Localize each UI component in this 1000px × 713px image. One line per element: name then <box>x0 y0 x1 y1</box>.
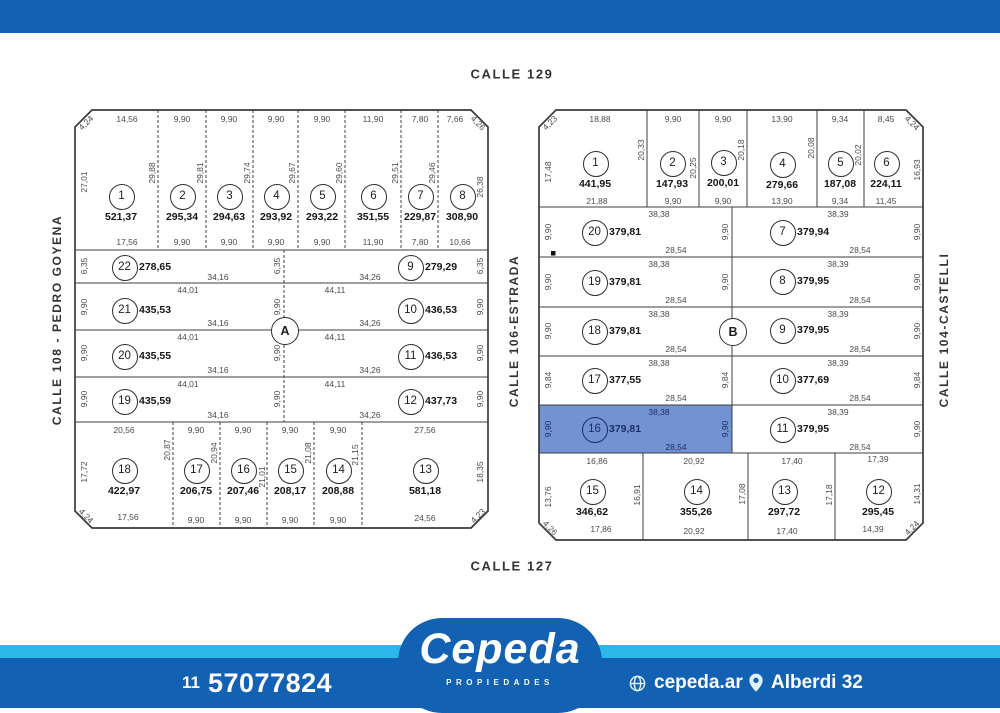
dimension-label: 9,90 <box>476 345 485 362</box>
dimension-label: 4,24 <box>77 507 95 525</box>
dimension-label: 20,87 <box>163 439 172 460</box>
dimension-label: 11,45 <box>876 197 897 206</box>
lot-number-badge: 5 <box>828 151 854 177</box>
lot-area: 435,55 <box>139 351 171 362</box>
dimension-label: 20,92 <box>683 527 704 536</box>
dimension-label: 29,46 <box>428 162 437 183</box>
dimension-label: 27,01 <box>80 171 89 192</box>
lot-number-badge: 6 <box>874 151 900 177</box>
logo-tagline: PROPIEDADES <box>446 678 554 687</box>
dimension-label: 26,38 <box>476 176 485 197</box>
dimension-label: 9,90 <box>721 274 730 291</box>
dimension-label: 9,90 <box>174 238 191 247</box>
lot-area: 297,72 <box>768 507 800 518</box>
lot-area: 436,53 <box>425 351 457 362</box>
dimension-label: 9,90 <box>80 391 89 408</box>
lot-number-badge: 15 <box>278 458 304 484</box>
street-label-pedro-goyena: CALLE 108 - PEDRO GOYENA <box>50 215 64 425</box>
lot-area: 377,69 <box>797 375 829 386</box>
globe-icon <box>628 674 647 693</box>
street-label-calle-127: CALLE 127 <box>470 559 553 574</box>
dimension-label: 29,67 <box>288 162 297 183</box>
dimension-label: 28,54 <box>849 296 870 305</box>
dimension-label: 9,90 <box>721 224 730 241</box>
lot-area: 278,65 <box>139 262 171 273</box>
phone-digits: 57077824 <box>208 668 332 699</box>
dimension-label: 9,90 <box>715 115 732 124</box>
dimension-label: 9,90 <box>665 115 682 124</box>
dimension-label: 44,01 <box>177 380 198 389</box>
dimension-label: 9,90 <box>273 391 282 408</box>
lot-number-badge: 12 <box>866 479 892 505</box>
dimension-label: 38,39 <box>827 408 848 417</box>
address-text: Alberdi 32 <box>771 672 863 694</box>
dimension-label: 9,90 <box>330 426 347 435</box>
dimension-label: 28,54 <box>849 246 870 255</box>
lot-area: 308,90 <box>446 212 478 223</box>
lot-area: 435,59 <box>139 396 171 407</box>
lot-area: 207,46 <box>227 486 259 497</box>
dimension-label: 34,16 <box>207 273 228 282</box>
dimension-label: 7,80 <box>412 238 429 247</box>
dimension-label: 7,66 <box>447 115 464 124</box>
dimension-label: 4,26 <box>469 114 487 132</box>
lot-number-badge: 11 <box>770 417 796 443</box>
lot-number-badge: 2 <box>660 151 686 177</box>
lot-area: 200,01 <box>707 178 739 189</box>
dimension-label: 9,90 <box>268 238 285 247</box>
lot-number-badge: 14 <box>684 479 710 505</box>
dimension-label: 20,08 <box>807 137 816 158</box>
dimension-label: 20,18 <box>737 139 746 160</box>
dimension-label: 44,01 <box>177 333 198 342</box>
dimension-label: 9,90 <box>715 197 732 206</box>
dimension-label: 9,90 <box>544 224 553 241</box>
dimension-label: 28,54 <box>849 345 870 354</box>
dimension-label: 17,72 <box>80 461 89 482</box>
dimension-label: 9,34 <box>832 197 849 206</box>
dimension-label: 34,16 <box>207 366 228 375</box>
dimension-label: 17,86 <box>590 525 611 534</box>
lot-number-badge: 19 <box>582 270 608 296</box>
dimension-label: 38,39 <box>827 310 848 319</box>
street-label-calle-129: CALLE 129 <box>470 67 553 82</box>
lot-area: 379,95 <box>797 325 829 336</box>
lot-number-badge: 9 <box>770 318 796 344</box>
dimension-label: 9,90 <box>544 274 553 291</box>
dimension-label: 27,56 <box>414 426 435 435</box>
dimension-label: 20,33 <box>637 139 646 160</box>
logo-bubble: Cepeda PROPIEDADES <box>398 618 602 713</box>
lot-area: 293,22 <box>306 212 338 223</box>
lot-number-badge: 20 <box>112 344 138 370</box>
lot-area: 379,81 <box>609 424 641 435</box>
dimension-label: 13,76 <box>544 486 553 507</box>
lot-number-badge: 8 <box>450 184 476 210</box>
dimension-label: 6,35 <box>80 258 89 275</box>
dimension-label: 9,90 <box>544 421 553 438</box>
lot-number-badge: 7 <box>770 220 796 246</box>
dimension-label: 18,88 <box>589 115 610 124</box>
street-label-estrada: CALLE 106-ESTRADA <box>507 255 521 408</box>
lot-number-badge: 12 <box>398 389 424 415</box>
lot-number-badge: 1 <box>583 151 609 177</box>
lot-area: 295,45 <box>862 507 894 518</box>
dimension-label: 18,35 <box>476 461 485 482</box>
lot-number-badge: 8 <box>770 269 796 295</box>
lot-area: 422,97 <box>108 486 140 497</box>
location-pin-icon <box>748 673 764 693</box>
dimension-label: 17,40 <box>776 527 797 536</box>
dimension-label: 9,90 <box>268 115 285 124</box>
phone-number: 11 57077824 <box>182 666 332 700</box>
dimension-label: 38,39 <box>827 359 848 368</box>
dimension-label: 38,38 <box>648 310 669 319</box>
dimension-label: 9,90 <box>273 299 282 316</box>
dimension-label: 29,51 <box>391 162 400 183</box>
lot-area: 279,66 <box>766 180 798 191</box>
lot-area: 206,75 <box>180 486 212 497</box>
dimension-label: 9,90 <box>174 115 191 124</box>
dimension-label: 9,90 <box>188 426 205 435</box>
lot-area: 581,18 <box>409 486 441 497</box>
lot-area: 208,88 <box>322 486 354 497</box>
lot-area: 521,37 <box>105 212 137 223</box>
dimension-label: 38,38 <box>648 408 669 417</box>
lot-number-badge: 17 <box>582 368 608 394</box>
phone-prefix: 11 <box>182 673 200 693</box>
address: Alberdi 32 <box>748 666 863 700</box>
dimension-label: 34,26 <box>359 366 380 375</box>
dimension-label: 28,54 <box>665 345 686 354</box>
lot-area: 441,95 <box>579 179 611 190</box>
dimension-label: 17,18 <box>825 484 834 505</box>
lot-number-badge: 11 <box>398 344 424 370</box>
lot-area: 229,87 <box>404 212 436 223</box>
dimension-label: 34,16 <box>207 319 228 328</box>
dimension-label: 21,88 <box>586 197 607 206</box>
dimension-label: 17,48 <box>544 161 553 182</box>
dimension-label: 44,11 <box>325 286 346 295</box>
lot-area: 379,81 <box>609 277 641 288</box>
dimension-label: 9,90 <box>913 323 922 340</box>
lot-area: 208,17 <box>274 486 306 497</box>
dimension-label: 38,38 <box>648 359 669 368</box>
dimension-label: 4,23 <box>469 507 487 525</box>
lot-number-badge: 13 <box>772 479 798 505</box>
lot-number-badge: 20 <box>582 220 608 246</box>
dimension-label: 34,26 <box>359 411 380 420</box>
lot-area: 351,55 <box>357 212 389 223</box>
dimension-label: 9,34 <box>832 115 849 124</box>
dimension-label: 16,91 <box>633 484 642 505</box>
website-text: cepeda.ar <box>654 672 743 694</box>
dimension-label: 9,90 <box>476 391 485 408</box>
junction-label-B: B <box>719 318 747 346</box>
dimension-label: 10,66 <box>449 238 470 247</box>
dimension-label: 4,24 <box>903 114 921 132</box>
dimension-label: 38,39 <box>827 260 848 269</box>
lot-area: 379,94 <box>797 227 829 238</box>
dimension-label: 34,26 <box>359 273 380 282</box>
dimension-label: 17,39 <box>867 455 888 464</box>
lot-area: 379,81 <box>609 227 641 238</box>
lot-number-badge: 21 <box>112 298 138 324</box>
lot-number-badge: 3 <box>217 184 243 210</box>
dimension-label: 9,90 <box>282 426 299 435</box>
dimension-label: 29,81 <box>196 162 205 183</box>
lot-number-badge: 1 <box>109 184 135 210</box>
dimension-label: 20,94 <box>210 442 219 463</box>
lot-area: 436,53 <box>425 305 457 316</box>
dimension-label: 9,90 <box>330 516 347 525</box>
lot-number-badge: 6 <box>361 184 387 210</box>
lot-number-badge: 2 <box>170 184 196 210</box>
dimension-label: 9,90 <box>665 197 682 206</box>
lot-area: 355,26 <box>680 507 712 518</box>
dimension-label: 20,25 <box>689 157 698 178</box>
lot-area: 379,81 <box>609 326 641 337</box>
dimension-label: 7,80 <box>412 115 429 124</box>
dimension-label: 29,74 <box>243 162 252 183</box>
dimension-label: 9,90 <box>721 421 730 438</box>
lot-number-badge: 3 <box>711 150 737 176</box>
lot-number-badge: 16 <box>582 417 608 443</box>
lot-number-badge: 4 <box>770 152 796 178</box>
dimension-label: 9,90 <box>544 323 553 340</box>
dimension-label: 21,01 <box>258 466 267 487</box>
dimension-label: 28,54 <box>849 443 870 452</box>
dimension-label: 24,56 <box>414 514 435 523</box>
dimension-label: 9,84 <box>544 372 553 389</box>
dimension-label: 4,24 <box>903 519 921 537</box>
dimension-label: 9,90 <box>188 516 205 525</box>
dimension-label: 13,90 <box>771 197 792 206</box>
dimension-label: 11,90 <box>363 238 384 247</box>
dimension-label: 6,35 <box>273 258 282 275</box>
logo-wordmark: Cepeda <box>419 628 580 671</box>
junction-label-A: A <box>271 317 299 345</box>
lot-number-badge: 13 <box>413 458 439 484</box>
lot-area: 224,11 <box>870 179 902 190</box>
dimension-label: 9,84 <box>721 372 730 389</box>
dimension-label: 4,26 <box>541 519 559 537</box>
lot-area: 379,95 <box>797 276 829 287</box>
lot-area: 346,62 <box>576 507 608 518</box>
dimension-label: 9,90 <box>314 115 331 124</box>
lot-area: 187,08 <box>824 179 856 190</box>
lot-number-badge: 19 <box>112 389 138 415</box>
lot-number-badge: 10 <box>770 368 796 394</box>
dimension-label: 11,90 <box>363 115 384 124</box>
lot-number-badge: 7 <box>408 184 434 210</box>
dimension-label: 9,90 <box>80 345 89 362</box>
lot-number-badge: 18 <box>582 319 608 345</box>
dimension-label: 14,39 <box>862 525 883 534</box>
dimension-label: 20,92 <box>683 457 704 466</box>
lot-number-badge: 17 <box>184 458 210 484</box>
lot-area: 294,63 <box>213 212 245 223</box>
dimension-label: 17,40 <box>781 457 802 466</box>
left-block-lot-20[interactable]: 20435,55 <box>0 0 1000 708</box>
dimension-label: 17,08 <box>738 483 747 504</box>
lot-number-badge: 4 <box>264 184 290 210</box>
dimension-label: 13,90 <box>771 115 792 124</box>
dimension-label: 9,90 <box>80 299 89 316</box>
lot-number-badge: 9 <box>398 255 424 281</box>
dimension-label: 44,11 <box>325 380 346 389</box>
lot-number-badge: 22 <box>112 255 138 281</box>
dimension-label: 9,84 <box>913 372 922 389</box>
dimension-label: 34,26 <box>359 319 380 328</box>
lot-number-badge: 16 <box>231 458 257 484</box>
dimension-label: 9,90 <box>913 421 922 438</box>
lot-number-badge: 18 <box>112 458 138 484</box>
dimension-label: 4,24 <box>77 114 95 132</box>
dimension-label: 6,35 <box>476 258 485 275</box>
dimension-label: 9,90 <box>282 516 299 525</box>
lot-number-badge: 14 <box>326 458 352 484</box>
dimension-label: 9,90 <box>273 345 282 362</box>
dimension-label: 38,39 <box>827 210 848 219</box>
dimension-label: 16,93 <box>913 159 922 180</box>
dimension-label: 17,56 <box>117 513 138 522</box>
dimension-label: 9,90 <box>235 426 252 435</box>
dimension-label: 14,31 <box>913 483 922 504</box>
lot-area: 377,55 <box>609 375 641 386</box>
dimension-label: 21,08 <box>304 442 313 463</box>
dimension-label: 9,90 <box>476 299 485 316</box>
dimension-label: 20,02 <box>854 144 863 165</box>
dimension-label: 4,23 <box>541 114 559 132</box>
dimension-label: 28,54 <box>665 443 686 452</box>
dimension-label: 9,90 <box>235 516 252 525</box>
dimension-label: 20,56 <box>113 426 134 435</box>
lot-number-badge: 15 <box>580 479 606 505</box>
website-link[interactable]: cepeda.ar <box>628 666 743 700</box>
dimension-label: 9,90 <box>913 224 922 241</box>
street-label-castelli: CALLE 104-CASTELLI <box>937 253 951 408</box>
lot-area: 293,92 <box>260 212 292 223</box>
dimension-label: 28,54 <box>665 296 686 305</box>
lot-area: 279,29 <box>425 262 457 273</box>
dimension-label: 9,90 <box>913 274 922 291</box>
dimension-label: 29,60 <box>335 162 344 183</box>
dimension-label: 16,86 <box>586 457 607 466</box>
lot-area: 295,34 <box>166 212 198 223</box>
map-labels: CALLE 129 CALLE 127 CALLE 108 - PEDRO GO… <box>0 0 1000 708</box>
dimension-label: 9,90 <box>221 238 238 247</box>
dimension-label: 28,54 <box>665 394 686 403</box>
dimension-label: 9,90 <box>314 238 331 247</box>
dimension-label: 44,11 <box>325 333 346 342</box>
dimension-label: 8,45 <box>878 115 895 124</box>
dimension-label: 17,56 <box>116 238 137 247</box>
dimension-label: 9,90 <box>221 115 238 124</box>
dimension-label: 38,38 <box>648 210 669 219</box>
lot-area: 147,93 <box>656 179 688 190</box>
dimension-label: 38,38 <box>648 260 669 269</box>
dimension-label: 21,15 <box>351 444 360 465</box>
dimension-label: 28,54 <box>665 246 686 255</box>
dimension-label: 29,88 <box>148 162 157 183</box>
lot-area: 435,53 <box>139 305 171 316</box>
lot-area: 437,73 <box>425 396 457 407</box>
lot-number-badge: 5 <box>310 184 336 210</box>
lot-number-badge: 10 <box>398 298 424 324</box>
lot-area: 379,95 <box>797 424 829 435</box>
dimension-label: 44,01 <box>177 286 198 295</box>
dimension-label: 14,56 <box>116 115 137 124</box>
dimension-label: 34,16 <box>207 411 228 420</box>
dimension-label: 28,54 <box>849 394 870 403</box>
